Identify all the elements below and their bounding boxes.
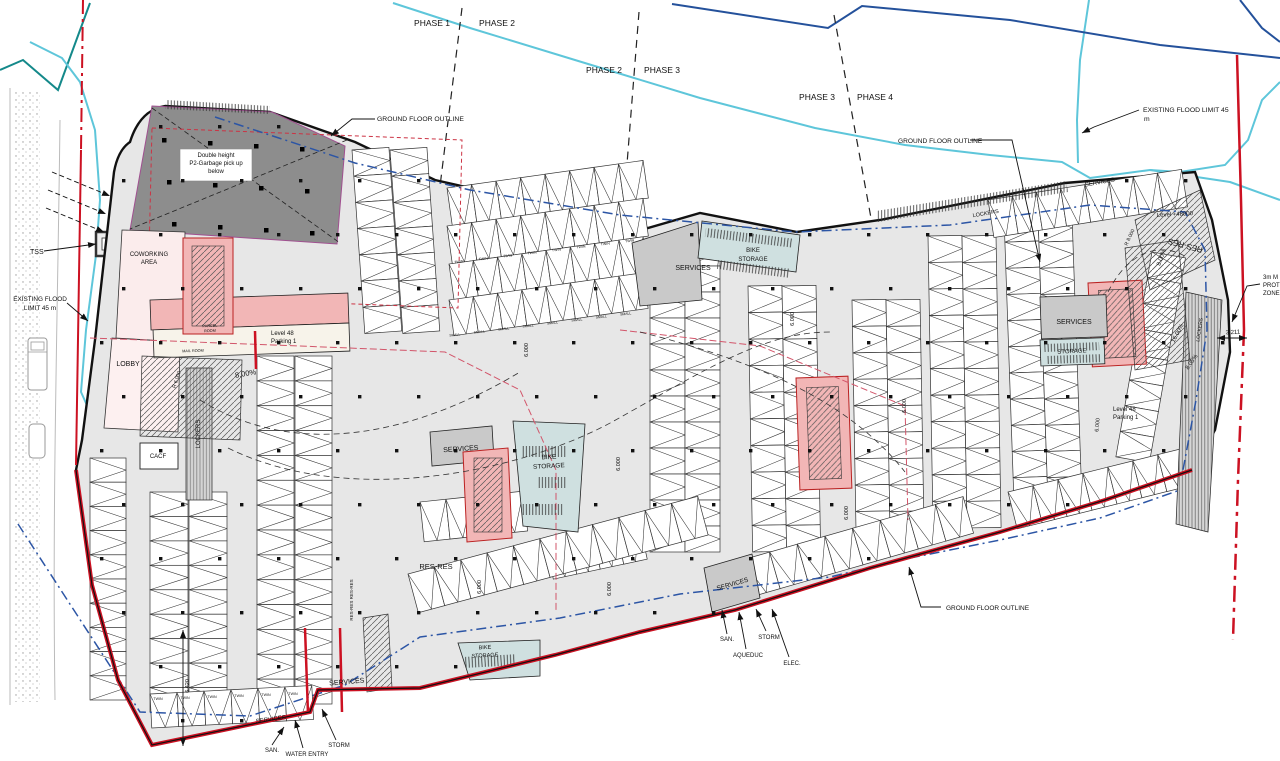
- parking-stall: [932, 448, 966, 475]
- level48-right-2: Parking 1: [1113, 415, 1139, 421]
- parking-stall: [750, 392, 784, 419]
- structural-column: [1066, 503, 1069, 506]
- parking-stall: [685, 344, 720, 370]
- structural-column: [358, 179, 361, 182]
- parking-stall: [966, 448, 1000, 475]
- structural-column: [771, 503, 774, 506]
- parking-stall: [257, 530, 294, 555]
- parking-stall: [752, 498, 786, 525]
- bike-storage-top-1: BIKE: [746, 248, 760, 254]
- structural-column: [749, 557, 752, 560]
- structural-column: [926, 449, 929, 452]
- parking-stall: [963, 315, 997, 342]
- structural-column: [594, 611, 597, 614]
- parking-stall: [257, 605, 294, 630]
- red-wall-segment-3: [255, 331, 256, 369]
- parcel-room-1: PARCEL: [202, 324, 217, 329]
- parking-stall: [295, 555, 332, 580]
- structural-column: [240, 179, 243, 182]
- parking-stall: [1045, 424, 1080, 451]
- structural-column: [218, 557, 221, 560]
- structural-column: [476, 503, 479, 506]
- structural-column: [1184, 287, 1187, 290]
- level48-right-1: Level 48: [1113, 407, 1136, 413]
- structural-column: [1162, 233, 1165, 236]
- parking-stall: [257, 580, 294, 605]
- phase-3-label: PHASE 3: [644, 65, 680, 75]
- parking-stall: [295, 654, 332, 679]
- parking-stall: [1007, 293, 1042, 320]
- parking-stall: [930, 342, 964, 369]
- parking-row: [295, 356, 332, 704]
- parking-stall: [650, 396, 685, 422]
- structural-column: [1221, 341, 1224, 344]
- structural-column: [631, 233, 634, 236]
- parking-stall: [189, 639, 227, 663]
- structural-column: [985, 233, 988, 236]
- parking-stall: [90, 458, 126, 482]
- structural-column: [690, 233, 693, 236]
- parking-stall: [931, 395, 965, 422]
- parking-stall: [962, 235, 996, 262]
- parking-stall: [783, 339, 817, 366]
- mail-parcel-room-band: [150, 293, 350, 358]
- structural-column: [358, 611, 361, 614]
- structural-column: [172, 222, 177, 227]
- structural-column: [417, 611, 420, 614]
- stall-type-tag: TWIN: [288, 692, 298, 696]
- structural-column: [830, 503, 833, 506]
- structural-column: [358, 503, 361, 506]
- parking-stall: [931, 421, 965, 448]
- parking-stall: [1010, 398, 1045, 425]
- structural-column: [1162, 341, 1165, 344]
- structural-column: [259, 186, 264, 191]
- phase-2-label: PHASE 2: [479, 18, 515, 28]
- structural-column: [218, 125, 221, 128]
- structural-column: [948, 287, 951, 290]
- parking-stall: [295, 629, 332, 654]
- parking-stall: [1039, 241, 1074, 268]
- parking-stall: [886, 326, 920, 353]
- structural-column: [395, 557, 398, 560]
- structural-column: [240, 611, 243, 614]
- storm-mid: STORM: [758, 635, 780, 641]
- res-res-vertical: RES-RES RES-RES: [349, 579, 354, 620]
- parking-stall: [257, 455, 294, 480]
- parking-stall: [1043, 372, 1078, 399]
- phase-1-label: PHASE 1: [414, 18, 450, 28]
- structural-column: [240, 395, 243, 398]
- structural-column: [122, 395, 125, 398]
- parking-stall: [189, 590, 227, 614]
- structural-column: [162, 138, 167, 143]
- structural-column: [513, 557, 516, 560]
- structural-column: [535, 503, 538, 506]
- dim-6000-6: 6.000: [902, 399, 908, 413]
- parking-row: [852, 299, 890, 538]
- structural-column: [159, 665, 162, 668]
- structural-column: [985, 449, 988, 452]
- parking-stall: [887, 352, 921, 379]
- structural-column: [594, 503, 597, 506]
- garbage-note-1: Double height: [197, 153, 234, 159]
- structural-column: [1125, 287, 1128, 290]
- structural-column: [218, 341, 221, 344]
- prot-zone-2: PROT: [1263, 283, 1280, 289]
- parking-stall: [1005, 241, 1040, 268]
- parking-stall: [854, 405, 888, 432]
- structural-column: [181, 611, 184, 614]
- structural-column: [690, 341, 693, 344]
- structural-column: [1125, 179, 1128, 182]
- structural-column: [513, 449, 516, 452]
- structural-column: [631, 341, 634, 344]
- storm-botleft: STORM: [328, 743, 350, 749]
- parking-stall: [1009, 346, 1044, 373]
- structural-column: [122, 287, 125, 290]
- parking-stall: [965, 421, 999, 448]
- structural-column: [417, 503, 420, 506]
- structural-column: [1103, 233, 1106, 236]
- structural-column: [690, 557, 693, 560]
- parking-stall: [189, 516, 227, 540]
- parking-stall: [752, 525, 786, 552]
- parking-stall: [257, 406, 294, 431]
- parking-stall: [886, 299, 920, 326]
- structural-column: [240, 503, 243, 506]
- structural-column: [631, 557, 634, 560]
- structural-column: [218, 449, 221, 452]
- structural-column: [808, 557, 811, 560]
- ground-floor-outline-top: GROUND FLOOR OUTLINE: [377, 116, 464, 123]
- parking-stall: [751, 445, 785, 472]
- structural-column: [653, 395, 656, 398]
- parking-stall: [650, 344, 685, 370]
- parking-stall: [929, 288, 963, 315]
- structural-column: [1066, 395, 1069, 398]
- structural-column: [254, 144, 259, 149]
- parking-stall: [782, 285, 816, 312]
- ground-floor-outline-right: GROUND FLOOR OUTLINE: [898, 138, 983, 145]
- structural-column: [208, 141, 213, 146]
- structural-column: [299, 179, 302, 182]
- parking-row: [150, 492, 188, 712]
- parking-stall: [965, 395, 999, 422]
- parking-stall: [295, 356, 332, 381]
- parking-stall: [685, 318, 720, 344]
- parking-stall: [189, 565, 227, 589]
- floor-plan-page: PHASE 1PHASE 2PHASE 2PHASE 3PHASE 3PHASE…: [0, 0, 1280, 761]
- parking-stall: [852, 326, 886, 353]
- structural-column: [830, 287, 833, 290]
- dim-6420: 6.420: [185, 679, 191, 693]
- structural-column: [299, 611, 302, 614]
- ground-floor-outline-bottom: GROUND FLOOR OUTLINE: [946, 605, 1030, 612]
- parking-stall: [928, 262, 962, 289]
- structural-column: [1184, 179, 1187, 182]
- parking-row: [962, 235, 1001, 528]
- parking-stall: [749, 365, 783, 392]
- parcel-room-2: ROOM: [204, 329, 216, 334]
- structural-column: [653, 503, 656, 506]
- cacf-label: CACF: [150, 454, 167, 460]
- structural-column: [1066, 287, 1069, 290]
- structural-column: [159, 125, 162, 128]
- parking-stall: [295, 505, 332, 530]
- parking-stall: [650, 318, 685, 344]
- structural-column: [100, 449, 103, 452]
- structural-column: [594, 287, 597, 290]
- structural-column: [454, 341, 457, 344]
- parking-stall: [964, 342, 998, 369]
- parking-stall: [619, 160, 649, 201]
- structural-column: [808, 341, 811, 344]
- parking-stall: [854, 432, 888, 459]
- parking-stall: [90, 482, 126, 506]
- parking-stall: [150, 541, 188, 565]
- structural-column: [712, 287, 715, 290]
- structural-column: [749, 233, 752, 236]
- structural-column: [771, 287, 774, 290]
- structural-column: [122, 179, 125, 182]
- parking-stall: [1044, 398, 1079, 425]
- stall-type-tag: TWIN: [180, 696, 190, 700]
- structural-column: [476, 395, 479, 398]
- parking-stall: [685, 396, 720, 422]
- structural-column: [889, 503, 892, 506]
- parking-stall: [1012, 450, 1047, 477]
- structural-column: [181, 503, 184, 506]
- structural-column: [454, 665, 457, 668]
- structural-column: [454, 233, 457, 236]
- structural-column: [395, 665, 398, 668]
- phase-3b-label: PHASE 3: [799, 92, 835, 102]
- structural-column: [159, 341, 162, 344]
- parking-stall: [1008, 319, 1043, 346]
- parking-stall: [685, 370, 720, 396]
- structural-column: [771, 395, 774, 398]
- structural-column: [218, 225, 223, 230]
- structural-column: [417, 287, 420, 290]
- structural-column: [889, 395, 892, 398]
- existing-flood-limit-left-2: LIMIT 45 m: [24, 305, 56, 312]
- dim-6000-7: 6.000: [844, 506, 850, 520]
- structural-column: [948, 395, 951, 398]
- structural-column: [712, 611, 715, 614]
- parking-stall: [1040, 267, 1075, 294]
- structural-column: [1007, 503, 1010, 506]
- parking-row: [189, 492, 227, 712]
- res-res-center: RES-RES: [419, 562, 452, 571]
- parking-stall: [90, 506, 126, 530]
- structural-column: [948, 503, 951, 506]
- structural-column: [358, 395, 361, 398]
- parking-stall: [963, 288, 997, 315]
- structural-column: [213, 183, 218, 188]
- structural-column: [277, 665, 280, 668]
- structural-column: [631, 449, 634, 452]
- stall-type-tag: TWIN: [261, 693, 271, 697]
- structural-column: [1007, 395, 1010, 398]
- structural-column: [277, 125, 280, 128]
- parking-stall: [685, 474, 720, 500]
- parking-stall: [295, 580, 332, 605]
- structural-column: [218, 233, 221, 236]
- dim-6000-4: 6.000: [607, 582, 613, 596]
- parking-stall: [751, 472, 785, 499]
- structural-column: [336, 233, 339, 236]
- stair-core-3: [796, 376, 852, 490]
- structural-column: [572, 449, 575, 452]
- structural-column: [513, 233, 516, 236]
- structural-column: [100, 557, 103, 560]
- dim-6000-8: 6.000: [1094, 418, 1101, 432]
- parking-stall: [748, 285, 782, 312]
- bike-storage-center-1: BIKE: [541, 454, 557, 462]
- parking-stall: [257, 356, 294, 381]
- structural-column: [299, 503, 302, 506]
- structural-column: [218, 665, 221, 668]
- structural-column: [395, 233, 398, 236]
- structural-column: [240, 719, 243, 722]
- structural-column: [159, 449, 162, 452]
- parking-stall: [852, 299, 886, 326]
- services-zone-right: [1040, 295, 1107, 339]
- structural-column: [690, 449, 693, 452]
- elec-mid: ELEC.: [783, 661, 801, 667]
- structural-column: [277, 557, 280, 560]
- structural-column: [277, 233, 280, 236]
- parking-stall: [295, 605, 332, 630]
- structural-column: [336, 341, 339, 344]
- parking-stall: [889, 484, 923, 511]
- car-graphic: [29, 424, 45, 458]
- structural-column: [167, 180, 172, 185]
- stair-core-2: [463, 448, 512, 542]
- parking-stall: [855, 458, 889, 485]
- aqueduc-mid: AQUEDUC: [733, 653, 764, 659]
- garbage-note-3: below: [208, 169, 224, 175]
- parking-stall: [650, 474, 685, 500]
- parking-stall: [749, 339, 783, 366]
- structural-column: [867, 449, 870, 452]
- structural-column: [867, 233, 870, 236]
- structural-column: [336, 665, 339, 668]
- structural-column: [395, 341, 398, 344]
- parking-stall: [650, 422, 685, 448]
- structural-column: [1125, 395, 1128, 398]
- prot-zone-3: ZONE: [1263, 291, 1280, 297]
- structural-column: [454, 557, 457, 560]
- stall-type-tag: TWIN: [153, 697, 163, 701]
- parking-stall: [257, 555, 294, 580]
- structural-column: [594, 395, 597, 398]
- parking-stall: [650, 370, 685, 396]
- structural-column: [181, 395, 184, 398]
- services-right: SERVICES: [1056, 319, 1092, 326]
- parking-stall: [295, 530, 332, 555]
- structural-column: [305, 189, 310, 194]
- structural-column: [513, 341, 516, 344]
- structural-column: [712, 503, 715, 506]
- parking-stall: [189, 541, 227, 565]
- parking-row: [748, 285, 787, 552]
- structural-column: [572, 233, 575, 236]
- parking-stall: [257, 381, 294, 406]
- truck-graphic: [28, 338, 47, 390]
- structural-column: [572, 341, 575, 344]
- parking-stall: [1006, 267, 1041, 294]
- dim-6000-3: 6.000: [477, 580, 483, 594]
- mail-room: MAIL ROOM: [182, 349, 204, 354]
- structural-column: [417, 395, 420, 398]
- dim-6000-2: 6.000: [616, 457, 622, 471]
- parking-stall: [650, 448, 685, 474]
- hatch-strip-botleft: [363, 614, 392, 692]
- structural-column: [299, 287, 302, 290]
- structural-column: [1103, 449, 1106, 452]
- existing-flood-limit-right-2: m: [1144, 116, 1150, 123]
- phase-4-label: PHASE 4: [857, 92, 893, 102]
- stall-type-tag: TWIN: [234, 694, 244, 698]
- structural-column: [1007, 287, 1010, 290]
- parking-stall: [967, 501, 1001, 528]
- parking-stall: [853, 352, 887, 379]
- structural-column: [1044, 341, 1047, 344]
- structural-column: [889, 287, 892, 290]
- parking-stall: [90, 531, 126, 555]
- structural-column: [476, 287, 479, 290]
- structural-column: [240, 287, 243, 290]
- parking-stall: [748, 312, 782, 339]
- structural-column: [749, 449, 752, 452]
- bike-storage-top-2: STORAGE: [738, 257, 767, 263]
- bike-storage-center: [513, 421, 585, 532]
- parking-stall: [150, 516, 188, 540]
- parking-stall: [150, 565, 188, 589]
- parking-stall: [257, 480, 294, 505]
- structural-column: [310, 231, 315, 236]
- parking-stall: [1011, 424, 1046, 451]
- level48-left-2: Parking 1: [271, 339, 297, 345]
- parking-stall: [257, 431, 294, 456]
- structural-column: [749, 341, 752, 344]
- lockers-label-left: LOCKERS: [196, 420, 202, 449]
- parking-stall: [685, 422, 720, 448]
- structural-column: [653, 287, 656, 290]
- parking-row: [928, 235, 967, 528]
- structural-column: [926, 233, 929, 236]
- parking-stall: [90, 555, 126, 579]
- parking-stall: [966, 474, 1000, 501]
- structural-column: [867, 557, 870, 560]
- structural-column: [1044, 449, 1047, 452]
- coworking-label-1: COWORKING: [130, 252, 169, 258]
- parking-stall: [257, 505, 294, 530]
- floor-plan-svg: PHASE 1PHASE 2PHASE 2PHASE 3PHASE 3PHASE…: [0, 0, 1280, 761]
- stair-core-1: [183, 238, 233, 334]
- structural-column: [300, 147, 305, 152]
- parking-stall: [962, 262, 996, 289]
- parking-stall: [150, 639, 188, 663]
- dim-6000-5: 6.000: [790, 312, 796, 326]
- structural-column: [395, 449, 398, 452]
- structural-column: [926, 341, 929, 344]
- parking-stall: [964, 368, 998, 395]
- parking-stall: [928, 235, 962, 262]
- level48-left-1: Level 48: [271, 331, 294, 337]
